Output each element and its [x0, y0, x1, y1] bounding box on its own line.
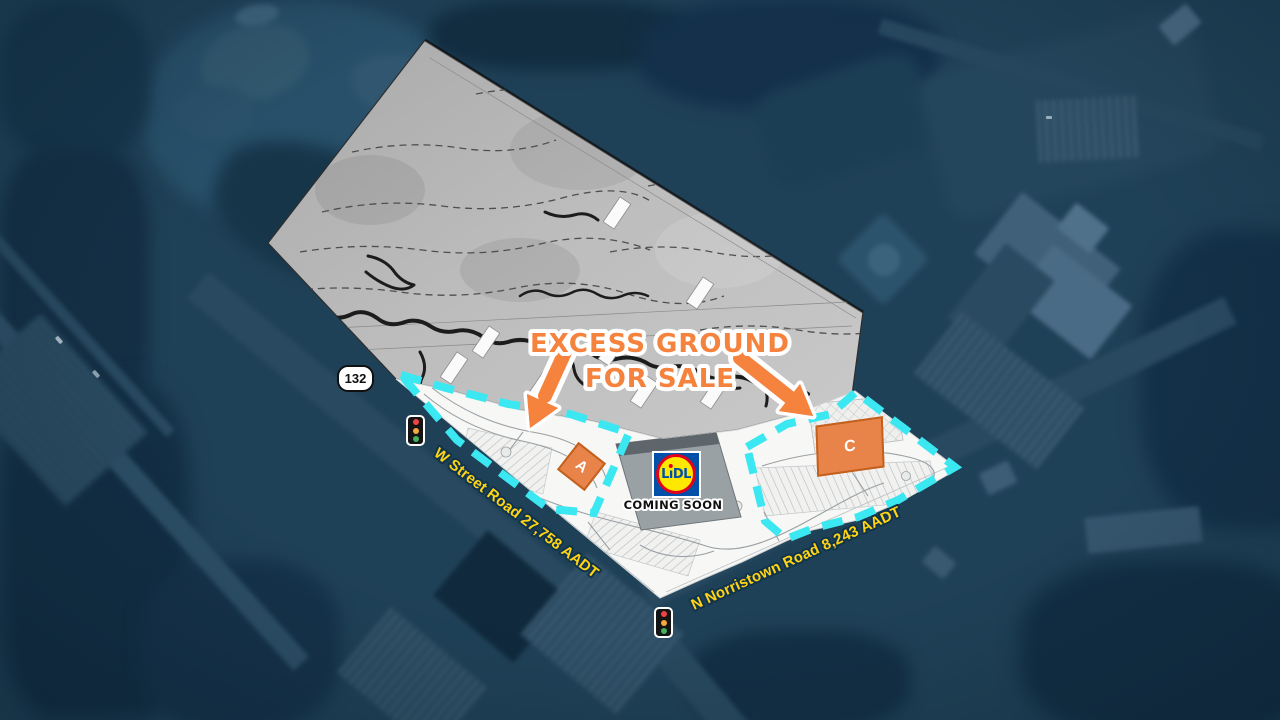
- lidl-i-dot: [669, 464, 674, 469]
- callout-headline-line1: EXCESS GROUND: [530, 329, 790, 359]
- outparcel-c-marker: C: [815, 416, 884, 477]
- callout-headline-line2: FOR SALE: [585, 364, 735, 394]
- site-plan-overlay: EXCESS GROUND FOR SALE W Street Road 27,…: [0, 0, 1280, 720]
- lidl-logo: LıDL: [652, 451, 701, 498]
- route-number: 132: [345, 371, 367, 386]
- lidl-wordmark: LıDL: [661, 467, 691, 482]
- route-132-shield: 132: [337, 365, 374, 392]
- aerial-site-map: EXCESS GROUND FOR SALE W Street Road 27,…: [0, 0, 1280, 720]
- traffic-light-icon: [406, 415, 425, 446]
- outparcel-a-label: A: [572, 456, 591, 476]
- outparcel-c-label: C: [844, 437, 856, 457]
- coming-soon-label: COMING SOON: [624, 498, 723, 512]
- traffic-light-icon: [654, 607, 673, 638]
- lidl-logo-circle: LıDL: [656, 454, 696, 494]
